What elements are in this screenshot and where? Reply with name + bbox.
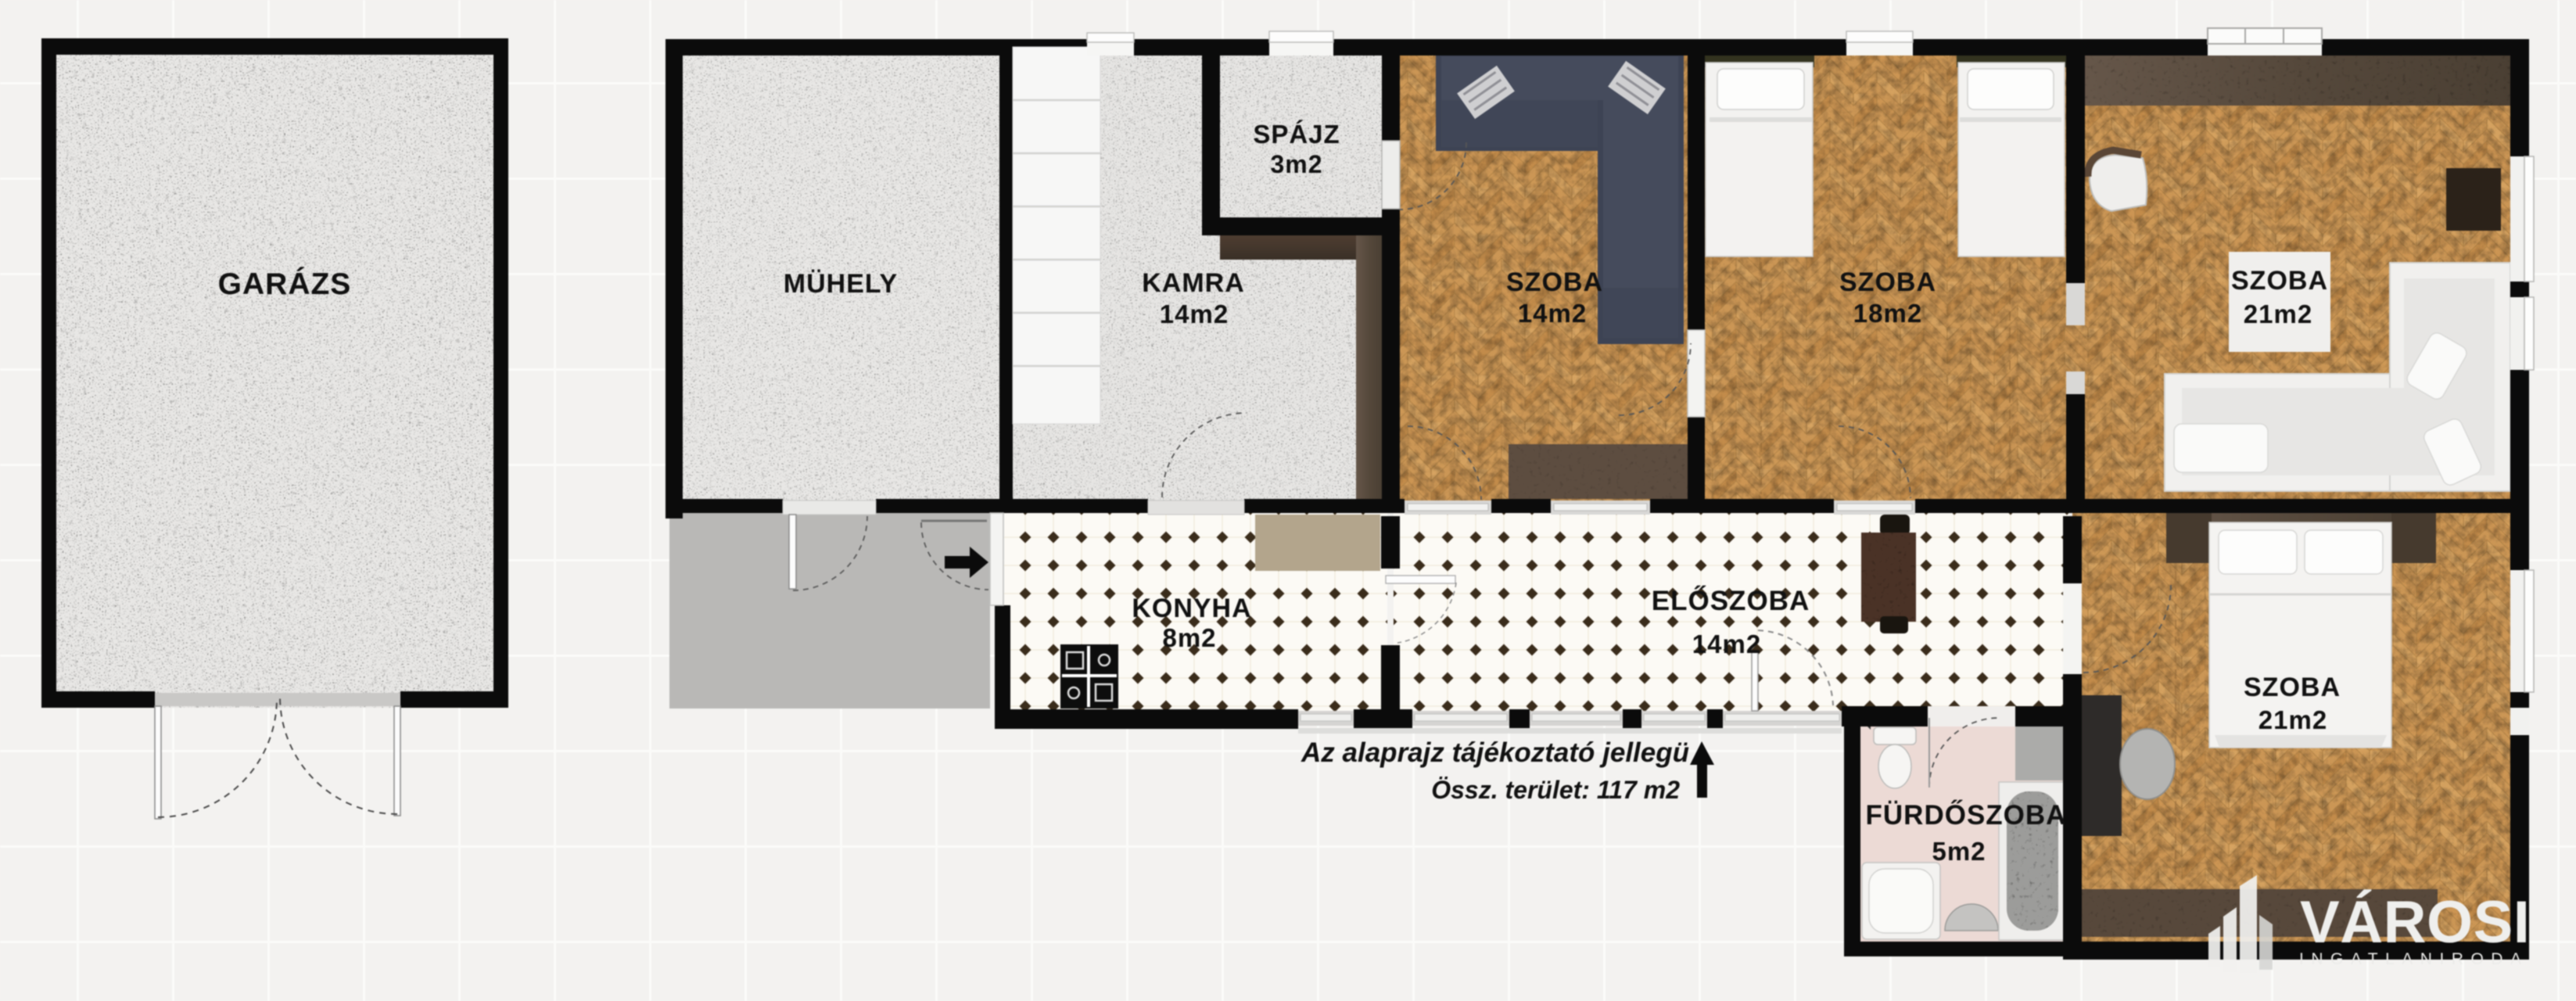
svg-text:14m2: 14m2 — [1160, 300, 1229, 328]
svg-text:KAMRA: KAMRA — [1142, 268, 1245, 298]
svg-text:MÜHELY: MÜHELY — [784, 269, 898, 299]
svg-text:14m2: 14m2 — [1518, 299, 1587, 328]
svg-text:KONYHA: KONYHA — [1132, 594, 1251, 623]
svg-text:GARÁZS: GARÁZS — [218, 267, 352, 301]
svg-text:FÜRDŐSZOBA: FÜRDŐSZOBA — [1866, 799, 2067, 831]
svg-text:5m2: 5m2 — [1932, 837, 1986, 866]
svg-text:3m2: 3m2 — [1270, 150, 1322, 178]
svg-text:18m2: 18m2 — [1853, 299, 1922, 328]
svg-text:Össz. terület: 117 m2: Össz. terület: 117 m2 — [1431, 776, 1680, 804]
svg-text:SZOBA: SZOBA — [1506, 267, 1603, 297]
svg-text:SZOBA: SZOBA — [1839, 267, 1936, 297]
svg-text:INGATLANIRODA: INGATLANIRODA — [2299, 950, 2528, 968]
svg-text:21m2: 21m2 — [2244, 300, 2312, 328]
svg-text:8m2: 8m2 — [1162, 623, 1216, 652]
svg-text:ELŐSZOBA: ELŐSZOBA — [1652, 585, 1810, 616]
svg-text:SZOBA: SZOBA — [2244, 673, 2341, 702]
svg-text:14m2: 14m2 — [1692, 630, 1761, 658]
svg-text:Az alaprajz tájékoztató jelleg: Az alaprajz tájékoztató jellegü — [1301, 737, 1689, 768]
svg-text:SZOBA: SZOBA — [2231, 266, 2328, 296]
svg-text:VÁROSI: VÁROSI — [2300, 889, 2530, 956]
svg-text:SPÁJZ: SPÁJZ — [1253, 120, 1340, 149]
svg-text:21m2: 21m2 — [2258, 705, 2327, 734]
